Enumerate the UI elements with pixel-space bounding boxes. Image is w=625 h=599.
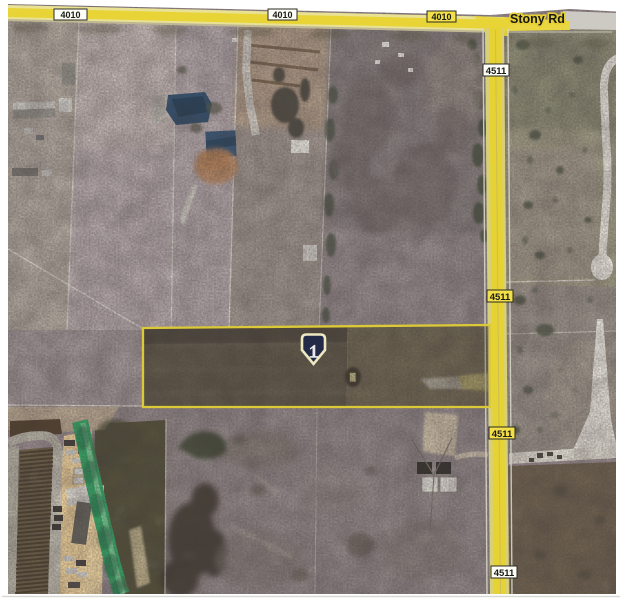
svg-text:4511: 4511 bbox=[494, 568, 515, 579]
svg-text:4511: 4511 bbox=[486, 66, 507, 77]
svg-text:4010: 4010 bbox=[272, 10, 292, 20]
svg-text:4511: 4511 bbox=[492, 429, 513, 440]
svg-text:Stony Rd: Stony Rd bbox=[510, 12, 565, 26]
svg-text:4511: 4511 bbox=[490, 292, 511, 303]
svg-text:4010: 4010 bbox=[431, 12, 451, 22]
svg-text:4010: 4010 bbox=[60, 10, 80, 20]
